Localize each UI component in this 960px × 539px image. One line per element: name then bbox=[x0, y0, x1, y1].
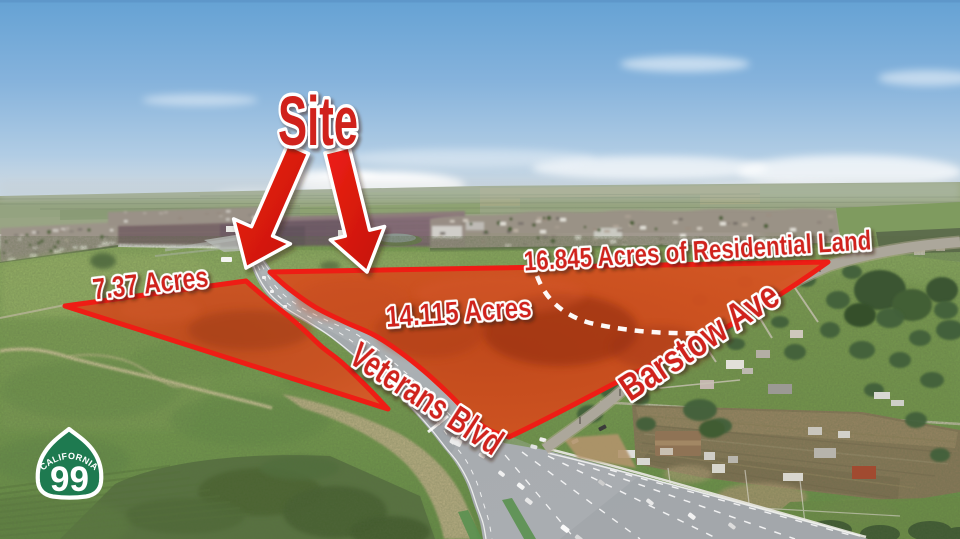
svg-text:99: 99 bbox=[50, 460, 89, 499]
svg-text:Site: Site bbox=[278, 82, 358, 160]
